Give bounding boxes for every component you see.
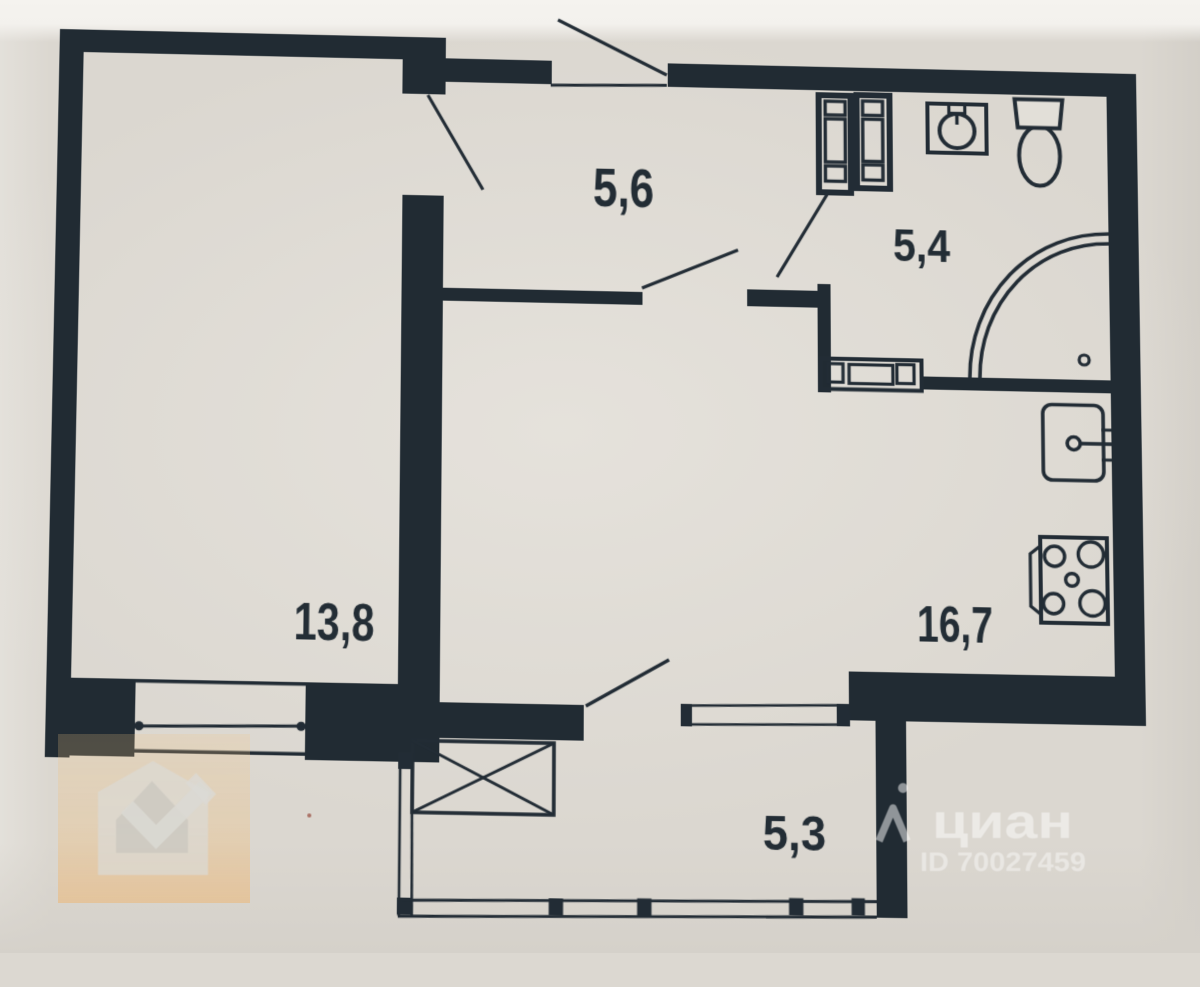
- svg-text:циан: циан: [932, 796, 1073, 849]
- svg-text:ID 70027459: ID 70027459: [920, 847, 1086, 877]
